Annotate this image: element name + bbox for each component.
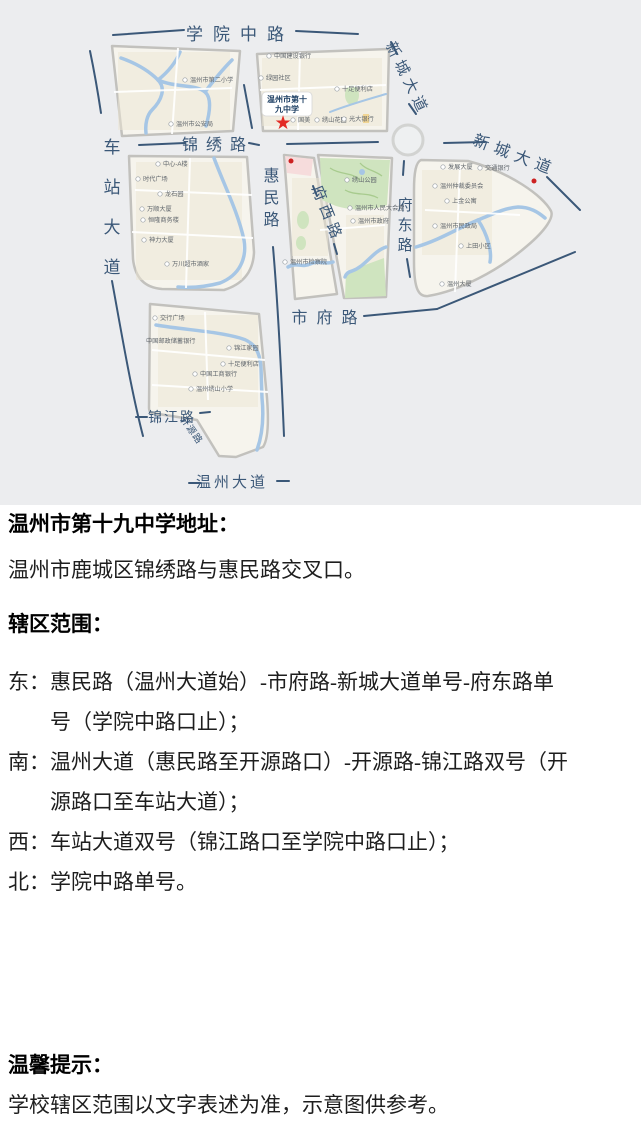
tips-text: 学校辖区范围以文字表述为准，示意图供参考。	[8, 1092, 633, 1118]
poi-icon	[440, 282, 444, 286]
poi-label: 中国建设银行	[274, 52, 311, 60]
boundary-text: 惠民路（温州大道始）-市府路-新城大道单号-府东路单号（学院中路口止）；	[50, 662, 570, 742]
poi-label: 上金公寓	[452, 197, 477, 205]
district-map-svg: 学院中路 新城大道 新城大道 车站大道 锦绣路 惠民路 府西路 府东路 市府路 …	[0, 0, 641, 505]
poi-label: 中心-A楼	[163, 160, 188, 168]
poi-label: 温州大厦	[447, 280, 472, 288]
poi-icon	[283, 260, 287, 264]
road-label-shifu-lu: 市府路	[291, 309, 366, 327]
poi-icon	[142, 238, 146, 242]
poi-label: 温州市民政局	[440, 222, 477, 230]
boundary-row-south: 南： 温州大道（惠民路至开源路口）-开源路-锦江路双号（开源路口至车站大道）；	[8, 742, 633, 822]
boundary-text: 车站大道双号（锦江路口至学院中路口止）；	[50, 822, 570, 862]
article-body: 温州市第十九中学地址： 温州市鹿城区锦绣路与惠民路交叉口。 辖区范围： 东： 惠…	[0, 511, 641, 1118]
road-label-xueyuan-zhong-lu: 学院中路	[186, 25, 294, 44]
district-heading: 辖区范围：	[8, 611, 633, 637]
poi-label: 龙石园	[165, 190, 184, 198]
poi-icon	[315, 118, 319, 122]
school-icon	[189, 387, 193, 391]
poi-icon	[433, 184, 437, 188]
poi-icon	[227, 346, 231, 350]
green-blob	[296, 236, 306, 250]
poi-label: 中国工商银行	[200, 370, 237, 378]
poi-label: 神力大厦	[149, 236, 174, 244]
poi-label: 恒隆商务楼	[148, 216, 179, 224]
road-label-chezhan-dadao: 车站大道	[101, 138, 121, 298]
poi-label: 温州仲裁委员会	[440, 182, 483, 190]
poi-label: 温州市第二小学	[190, 76, 233, 84]
poi-label: 温州绣山小学	[196, 385, 233, 393]
gov-icon	[351, 219, 355, 223]
boundary-direction: 北：	[8, 862, 50, 902]
poi-icon	[348, 206, 352, 210]
poi-label: 时代广场	[143, 175, 168, 183]
boundary-list: 东： 惠民路（温州大道始）-市府路-新城大道单号-府东路单号（学院中路口止）； …	[8, 662, 633, 902]
poi-icon	[140, 207, 144, 211]
boundary-text: 学院中路单号。	[50, 862, 570, 902]
poi-label: 万川超市酒家	[172, 260, 209, 268]
poi-label: 发展大厦	[448, 163, 473, 171]
boundary-row-north: 北： 学院中路单号。	[8, 862, 633, 902]
poi-icon	[335, 87, 339, 91]
boundary-row-west: 西： 车站大道双号（锦江路口至学院中路口止）；	[8, 822, 633, 862]
poi-label: 锦江家园	[234, 344, 259, 352]
poi-icon	[136, 177, 140, 181]
poi-label: 交通银行	[485, 164, 510, 172]
boundary-direction: 南：	[8, 742, 50, 822]
bank-icon	[478, 166, 482, 170]
poi-icon	[259, 76, 263, 80]
road-label-huimin-lu: 惠民路	[261, 167, 280, 233]
poi-label: 光大银行	[349, 115, 374, 123]
poi-icon	[433, 224, 437, 228]
poi-icon	[459, 244, 463, 248]
address-text: 温州市鹿城区锦绣路与惠民路交叉口。	[8, 557, 633, 583]
district-map: 学院中路 新城大道 新城大道 车站大道 锦绣路 惠民路 府西路 府东路 市府路 …	[0, 0, 641, 505]
poi-label: 温州市公安局	[176, 120, 213, 128]
poi-label: 十足便利店	[342, 85, 373, 93]
poi-label: 万顺大厦	[147, 205, 172, 213]
hospital-icon	[289, 159, 294, 164]
poi-icon	[153, 316, 157, 320]
poi-icon	[156, 162, 160, 166]
road-label-jinxiu-lu: 锦绣路	[182, 136, 254, 154]
boundary-text: 温州大道（惠民路至开源路口）-开源路-锦江路双号（开源路口至车站大道）；	[50, 742, 570, 822]
pink-area	[285, 156, 313, 176]
bank-icon	[342, 117, 346, 121]
school-star-icon: ★	[274, 113, 291, 134]
poi-icon	[158, 192, 162, 196]
poi-icon	[165, 262, 169, 266]
tips-heading: 温馨提示：	[8, 1052, 633, 1078]
poi-icon	[169, 122, 173, 126]
poi-label: 温州市检察院	[290, 258, 327, 266]
bank-icon	[532, 179, 537, 184]
poi-icon	[221, 362, 225, 366]
green-blob	[297, 211, 309, 229]
road-label-wenzhou-dadao: 温州大道	[196, 474, 268, 491]
poi-label: 温州市人民大会堂	[355, 204, 405, 212]
boundary-direction: 西：	[8, 822, 50, 862]
poi-label: 温州市政府	[358, 217, 389, 225]
poi-label: 十足便利店	[228, 360, 259, 368]
park-pond	[359, 169, 365, 175]
bank-icon	[193, 372, 197, 376]
road-line	[200, 412, 210, 413]
school-icon	[183, 78, 187, 82]
poi-label: 中国邮政储蓄银行	[146, 337, 196, 345]
poi-label: 绣山公园	[352, 176, 377, 184]
poi-icon	[445, 199, 449, 203]
bank-icon	[267, 54, 271, 58]
poi-icon	[141, 218, 145, 222]
roundabout	[393, 125, 423, 155]
school-label-line1: 温州市第十	[267, 94, 307, 104]
road-line	[403, 161, 404, 175]
poi-label: 国美	[298, 116, 310, 124]
poi-label: 绿园社区	[266, 74, 291, 82]
poi-label: 交行广场	[160, 314, 185, 322]
boundary-row-east: 东： 惠民路（温州大道始）-市府路-新城大道单号-府东路单号（学院中路口止）；	[8, 662, 633, 742]
boundary-direction: 东：	[8, 662, 50, 742]
poi-label: 上田小区	[466, 242, 491, 250]
address-heading: 温州市第十九中学地址：	[8, 511, 633, 537]
poi-icon	[441, 165, 445, 169]
park-icon	[345, 178, 349, 182]
